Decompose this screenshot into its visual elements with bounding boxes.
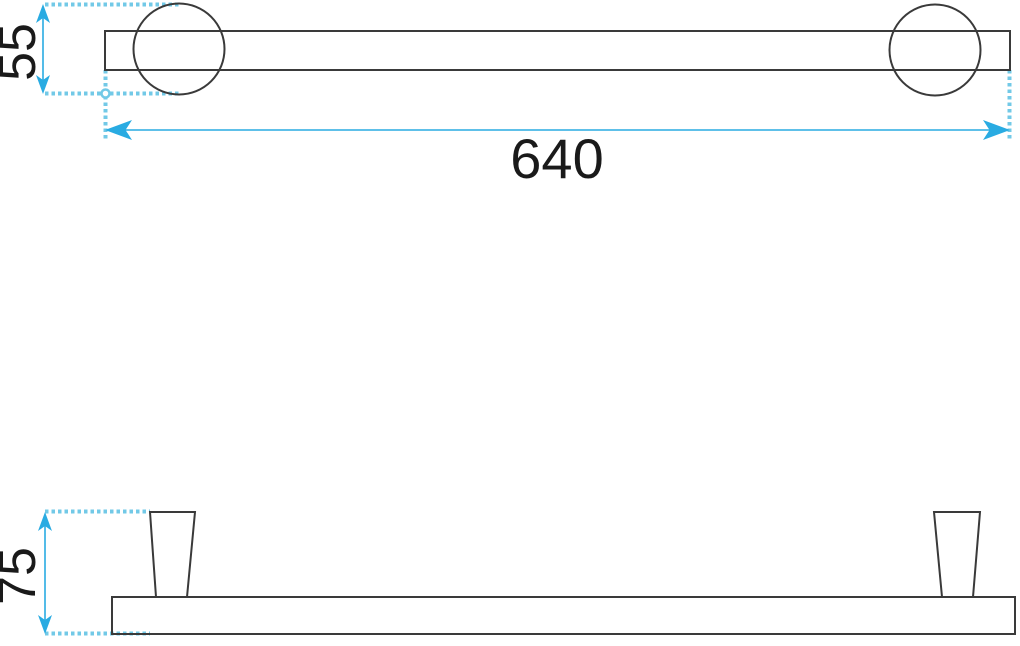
top-view: 55 640: [0, 4, 1010, 191]
right-post-outline: [934, 512, 980, 597]
bar-length-dimension: 640: [105, 120, 1010, 190]
front-view: 75: [0, 512, 1015, 635]
left-post-outline: [150, 512, 195, 597]
flange-diameter-label: 55: [0, 23, 47, 81]
flange-diameter-dimension: 55: [0, 4, 50, 94]
front-view-bar-outline: [112, 597, 1015, 634]
extension-junction-ring: [102, 90, 110, 98]
left-flange-circle: [134, 4, 225, 95]
towel-bar-drawing: 55 640 75: [0, 0, 1020, 646]
bar-length-label: 640: [510, 127, 603, 190]
technical-drawing-canvas: 55 640 75: [0, 0, 1020, 646]
post-height-label: 75: [0, 547, 47, 605]
right-flange-circle: [890, 5, 981, 96]
top-view-bar-outline: [105, 31, 1010, 70]
post-height-dimension: 75: [0, 512, 52, 634]
